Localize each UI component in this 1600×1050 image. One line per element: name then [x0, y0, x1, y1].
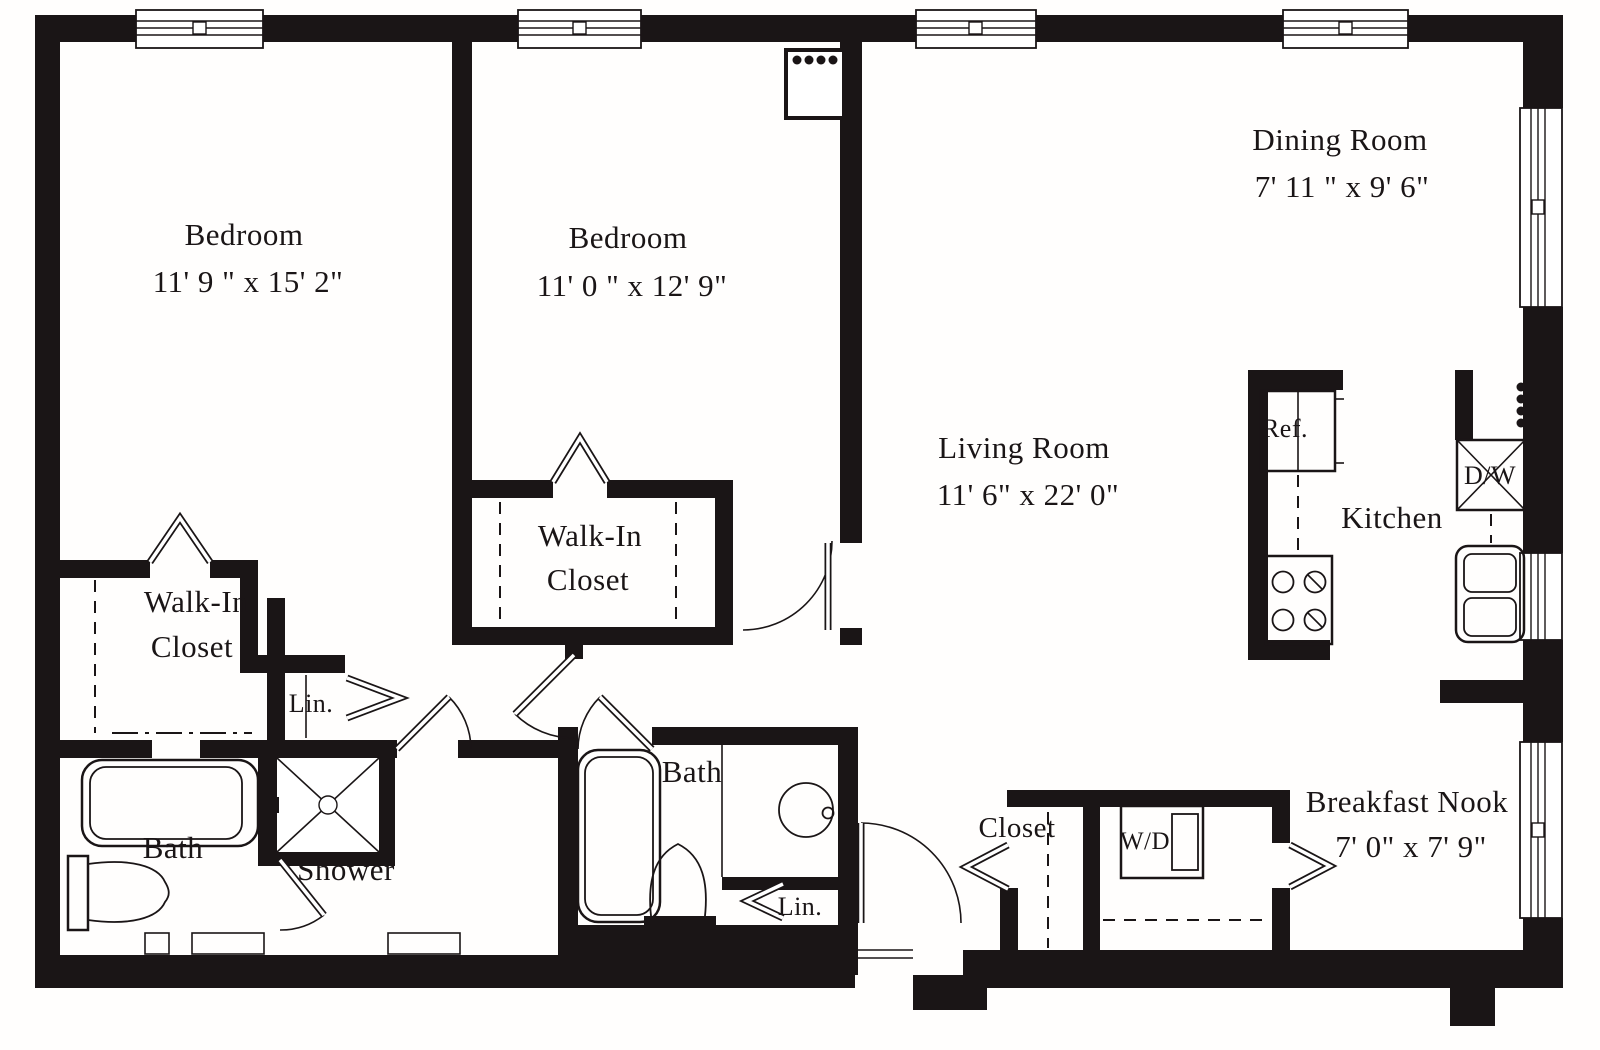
entry-closet-door — [966, 845, 1008, 889]
washer-dryer-label: W/D — [1120, 828, 1170, 855]
window-top-3 — [916, 10, 1036, 48]
window-kitchen — [1520, 553, 1562, 640]
nook-label: Breakfast Nook — [1306, 784, 1508, 819]
wic2-label-line2: Closet — [547, 562, 629, 597]
walls — [35, 15, 1563, 1026]
bedroom1-label: Bedroom — [185, 217, 304, 252]
bath1-label: Bath — [143, 830, 204, 865]
refrigerator-label: Ref. — [1262, 414, 1308, 443]
kitchen-sink — [1456, 546, 1524, 642]
sink-round — [722, 745, 834, 877]
wic1-label-line2: Closet — [151, 629, 233, 664]
lin2-label: Lin. — [778, 892, 823, 921]
nook-closet-door — [1290, 845, 1330, 887]
entry-closet-label: Closet — [978, 812, 1055, 844]
bedroom2-door — [743, 541, 832, 630]
stove — [1266, 556, 1332, 644]
window-top-4 — [1283, 10, 1408, 48]
wic1-label-line1: Walk-In — [144, 584, 248, 619]
wic2-label-line1: Walk-In — [538, 518, 642, 553]
floor-plan-drawing: Bedroom 11' 9 " x 15' 2" Bedroom 11' 0 "… — [0, 0, 1600, 1050]
shower-stall — [270, 758, 379, 852]
window-dining — [1520, 108, 1562, 307]
bedroom2-dims: 11' 0 " x 12' 9" — [537, 268, 728, 303]
toilet-1 — [68, 856, 169, 930]
bedroom2-label: Bedroom — [569, 220, 688, 255]
shower-label: Shower — [297, 852, 395, 887]
wic1-door — [150, 518, 210, 562]
vanity-cabinets — [145, 933, 460, 954]
lin1-label: Lin. — [289, 689, 334, 718]
window-top-1 — [136, 10, 263, 48]
dishwasher-label: D/W — [1464, 461, 1516, 490]
entry-door — [857, 823, 961, 958]
window-top-2 — [518, 10, 641, 48]
wic2-door — [553, 438, 607, 482]
dining-room-label: Dining Room — [1252, 122, 1427, 157]
living-room-dims: 11' 6" x 22' 0" — [937, 477, 1119, 512]
lin1-door — [347, 678, 400, 718]
utility-chase — [786, 50, 844, 118]
floor-plan: Bedroom 11' 9 " x 15' 2" Bedroom 11' 0 "… — [0, 0, 1600, 1050]
bath2-label: Bath — [662, 754, 723, 789]
window-nook — [1520, 742, 1562, 918]
bedroom1-dims: 11' 9 " x 15' 2" — [153, 264, 344, 299]
bathtub-2 — [578, 750, 660, 922]
living-room-label: Living Room — [938, 430, 1110, 465]
dining-room-dims: 7' 11 " x 9' 6" — [1255, 169, 1430, 204]
hall-bath-door — [578, 697, 652, 749]
nook-dims: 7' 0" x 7' 9" — [1335, 829, 1486, 864]
kitchen-label: Kitchen — [1341, 500, 1443, 535]
hall-door — [515, 655, 574, 738]
